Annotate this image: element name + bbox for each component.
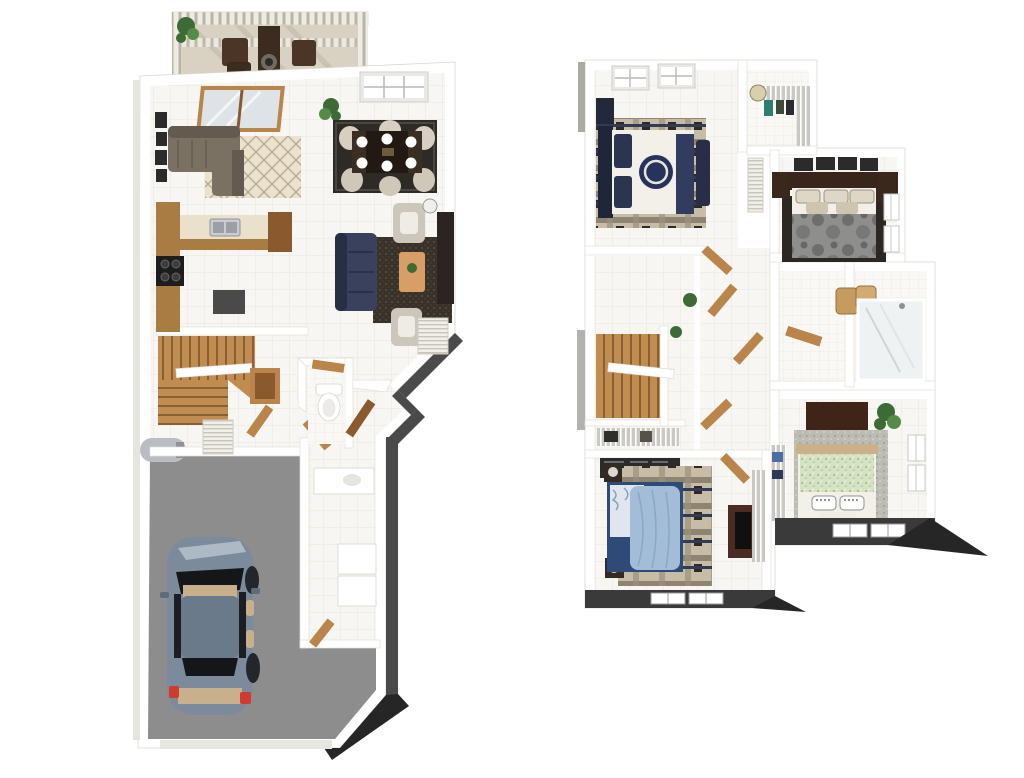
skylight-window-1 (612, 66, 649, 90)
kitchen-counter-bar (180, 212, 292, 252)
stairs-lower-flight (158, 380, 228, 425)
master-frame-2 (816, 157, 835, 170)
deck-railing-top (172, 12, 368, 25)
car-roof (180, 596, 240, 658)
bed4-headboard-shelf (796, 444, 878, 454)
car-side-glass-right (239, 592, 246, 658)
master-pillow-4 (806, 202, 828, 214)
bathroom-divider-wall (845, 262, 854, 387)
car-mirror-right (251, 588, 260, 594)
master-frame-1 (794, 158, 813, 171)
outdoor-armchair-3 (292, 40, 316, 66)
armchair-top (393, 203, 425, 243)
cooktop (156, 256, 184, 286)
navy-sofa (335, 233, 377, 311)
master-nightstand-left (772, 172, 790, 198)
grid-window (360, 72, 428, 102)
right-wall-face (386, 437, 398, 697)
bedroom2-dresser (596, 98, 614, 124)
sliding-glass-door (196, 86, 285, 132)
armchair-bottom (391, 308, 422, 346)
laundry-closet (597, 428, 679, 446)
stairs2-plant (670, 326, 682, 338)
green-speckled-bed (796, 444, 878, 522)
tv-console (437, 212, 454, 304)
left-wall-outer-face-top (578, 62, 585, 132)
car-wheel-rear (246, 653, 260, 683)
master-pillow-5 (836, 202, 858, 214)
car-side-glass-left (174, 594, 181, 658)
laundry-top-wall (585, 420, 685, 426)
console-table-top (255, 373, 275, 399)
outdoor-fireplace (258, 26, 280, 76)
mudroom-left-wall (300, 438, 309, 648)
glass-shower (858, 300, 924, 380)
wall-clock (750, 85, 766, 101)
bedroom3-top-wall (585, 450, 766, 458)
floor-plan-image (0, 0, 1024, 778)
car-seat-right2 (246, 630, 254, 648)
plate (357, 158, 368, 169)
bed3-tv (735, 512, 751, 549)
master-pillow-2 (824, 190, 848, 203)
car-rear-window (182, 658, 238, 676)
hanging-clothes-green (776, 100, 784, 114)
bed4-pillow-2 (840, 496, 864, 510)
laundry-supplies-1 (604, 431, 618, 442)
centerpiece (382, 148, 394, 156)
dryer (338, 576, 376, 606)
first-floor-plan (133, 12, 463, 760)
closet-left-wall (738, 60, 747, 152)
plate (382, 134, 393, 145)
car-taillight-right (240, 692, 251, 704)
master-frame-4 (860, 158, 878, 171)
navy-medallion-bed (598, 126, 710, 218)
master-headboard (788, 172, 878, 190)
master-frame-3 (838, 157, 857, 170)
bed2-pillow-1 (614, 134, 632, 168)
double-sink (210, 219, 240, 236)
floor-plan-svg (0, 0, 1024, 778)
plate (406, 158, 417, 169)
laundry-sink (343, 474, 361, 486)
refrigerator (213, 290, 245, 314)
outdoor-armchair-1 (222, 38, 248, 66)
light-blue-bed (607, 482, 683, 572)
bed4-duvet (800, 454, 874, 492)
bed4-closet-item-blue (772, 452, 783, 462)
bedroom2-bottom-wall (585, 246, 705, 255)
bedroom4-dresser (806, 402, 868, 430)
laundry-supplies-2 (640, 431, 652, 442)
bed4-pillow-1 (812, 496, 836, 510)
master-bedroom (772, 157, 899, 262)
bed2-pillow-2 (614, 176, 632, 208)
bed4-closet-item-navy (772, 470, 783, 479)
plate (357, 137, 368, 148)
bed2-foot-blanket (676, 134, 694, 214)
master-pillow-3 (850, 190, 874, 203)
hall-plant (683, 293, 697, 307)
master-duvet (792, 214, 876, 258)
left-wall-outer-face-mid (577, 330, 585, 430)
louvered-linen-closet (748, 158, 763, 212)
car-seat-right (246, 600, 254, 616)
second-floor-plan (577, 60, 988, 612)
bed3-lamp-top (608, 467, 618, 477)
skylight-window-2 (658, 64, 695, 88)
bed3-duvet (630, 486, 680, 570)
bedroom4-bottom-wall (775, 518, 988, 556)
floor-lamp (423, 199, 437, 213)
car-parcel-shelf (178, 688, 242, 704)
hanging-clothes-dark (786, 100, 794, 115)
dining-chair (379, 176, 401, 196)
bedroom3-bottom-wall (585, 590, 806, 612)
washer (338, 544, 376, 574)
plate (406, 137, 417, 148)
louvered-coat-closet (418, 318, 448, 354)
left-wall-outer-face (133, 80, 140, 740)
closet-bottom-wall (747, 146, 817, 155)
car-taillight-left (169, 686, 179, 698)
closet-wire-shelf-right (796, 100, 810, 146)
bed2-bench (696, 140, 710, 206)
louvered-closet-hall (203, 420, 233, 454)
plate (382, 161, 393, 172)
powder-room (308, 360, 345, 444)
toilet (316, 384, 342, 421)
stairs2-lower (596, 378, 660, 418)
car-mirror-left (160, 592, 169, 598)
coffee-table (399, 252, 425, 292)
shower-head (899, 303, 905, 309)
bed2-headboard (598, 126, 613, 218)
master-pillow-1 (796, 190, 820, 203)
bedroom3-wire-closet (752, 470, 765, 562)
garage-door-opening (160, 740, 332, 749)
hanging-clothes-teal (764, 100, 773, 116)
powder-room-wall-left (298, 358, 306, 412)
car (160, 537, 260, 715)
wicker-basket-1 (836, 288, 858, 314)
